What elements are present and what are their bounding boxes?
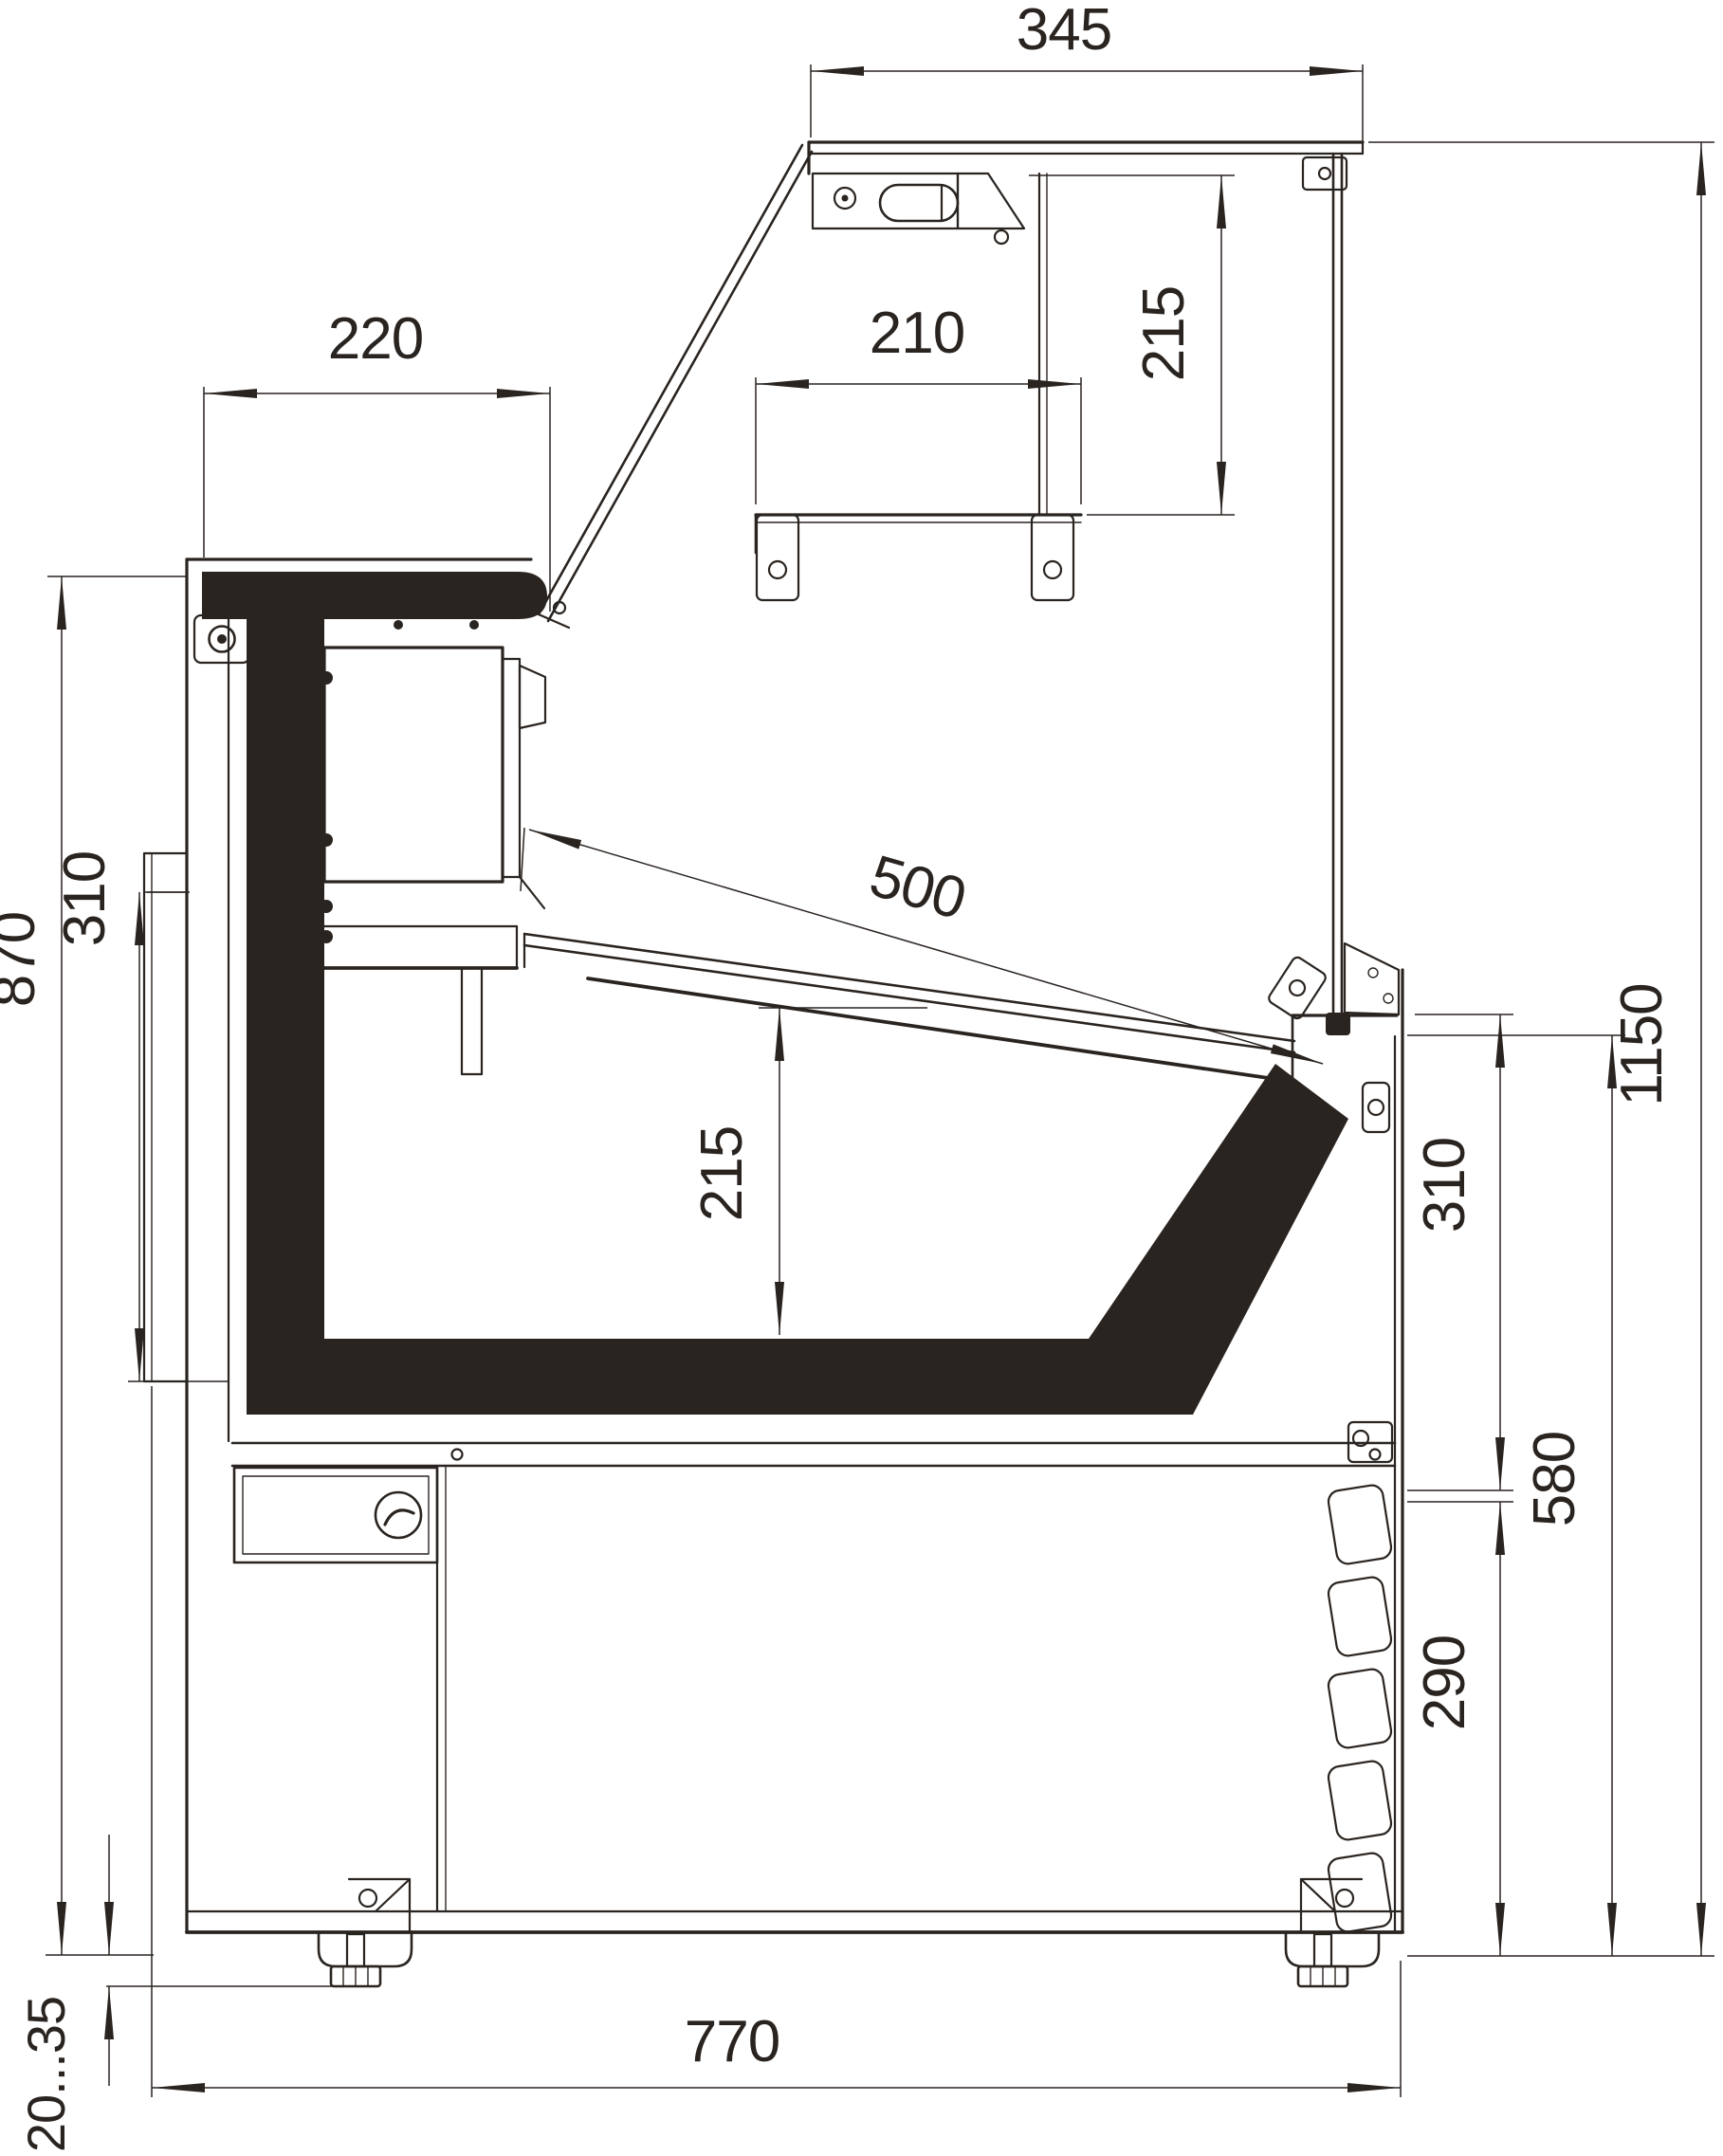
gusset-hole (1368, 968, 1378, 978)
corner-bracket-left-screw (359, 1890, 376, 1907)
evaporator-side-panel (503, 659, 520, 877)
evaporator-panel-chamfer (520, 877, 544, 908)
lamp-end-bracket (958, 174, 1024, 228)
band-screw (299, 620, 308, 630)
dim-label-210: 210 (870, 301, 964, 366)
evaporator-deflector (520, 666, 545, 728)
lamp-tube (880, 185, 958, 221)
rail-screw (1370, 1450, 1381, 1460)
liner-screw (320, 833, 333, 847)
lamp-screw-dot (842, 195, 849, 202)
dim-label-310-left: 310 (52, 851, 118, 946)
louver-slat (1327, 1484, 1392, 1565)
louver-slat (1327, 1576, 1392, 1657)
drain-pipe (462, 968, 482, 1074)
louver-slat (1327, 1852, 1392, 1933)
deck-support-rail (588, 978, 1288, 1081)
dim-label-215-well: 215 (689, 1126, 755, 1221)
sill-bracket-screw (1368, 1100, 1384, 1115)
intermediate-shelf (756, 515, 1081, 600)
technical-drawing-page: 345 220 210 215 500 215 310 870 1150 310… (0, 0, 1723, 2156)
dim-label-870: 870 (0, 912, 47, 1007)
liner-screw (320, 671, 333, 685)
dim-870-extensions (46, 576, 187, 1955)
corner-bracket-right-screw (1336, 1890, 1353, 1907)
worktop-band (202, 572, 547, 619)
dim-label-220: 220 (328, 306, 423, 372)
display-deck-bottom (524, 945, 1294, 1052)
foot-front (1269, 1932, 1396, 1986)
louver-slat (1327, 1760, 1392, 1841)
foot-screw-shaft (347, 1934, 364, 1966)
dim-label-20-35: 20...35 (16, 1997, 76, 2152)
dim-label-770: 770 (685, 2009, 779, 2074)
rear-flap-glass-outer (539, 145, 802, 614)
flap-clip-hole (1287, 978, 1308, 998)
shelf-bracket-left (757, 515, 798, 600)
dim-label-580: 580 (1522, 1432, 1587, 1526)
band-screw (394, 620, 403, 630)
foot-nut-knurl (1311, 1966, 1335, 1986)
corner-gusset (1345, 943, 1399, 1014)
foot-rear (302, 1932, 429, 1986)
louver-panel (1327, 1484, 1392, 1933)
base-compartment (187, 1443, 1402, 1932)
dim-345-extensions (811, 64, 1363, 142)
cable-gland-hook (385, 1510, 413, 1525)
dim-label-500: 500 (863, 843, 973, 932)
rear-flap-glass-inner (548, 152, 812, 621)
canopy-bracket (1303, 157, 1347, 190)
liner-screw (320, 900, 333, 913)
insulation-profile (202, 572, 1350, 1415)
cable-gland (376, 1492, 421, 1538)
dim-label-1150: 1150 (1609, 983, 1675, 1105)
canopy-bracket-hole (1319, 168, 1330, 179)
rear-service-panel (144, 853, 187, 1381)
corner-bracket-left-gusset (376, 1879, 410, 1911)
rail-screw (452, 1450, 463, 1460)
dim-label-345: 345 (1017, 0, 1111, 63)
evaporator-box (324, 648, 503, 882)
foot-screw-shaft (1314, 1934, 1331, 1966)
shelf-bracket-right (1032, 515, 1073, 600)
flap-clip-body (1267, 956, 1328, 1021)
well-liner-profile (247, 619, 1348, 1415)
electrical-box (234, 1468, 437, 1562)
electrical-box-inner (243, 1476, 429, 1554)
lamp-end-screw (995, 230, 1008, 244)
dim-310-right-extensions (1407, 1014, 1513, 1490)
dim-210-extensions (756, 377, 1081, 504)
shelf-bracket-hole-left (769, 561, 786, 578)
flap-clip (1267, 956, 1328, 1021)
foot-nut-knurl (343, 1966, 368, 1986)
shelf-bracket-hole-right (1044, 561, 1061, 578)
sill-bracket (1363, 1083, 1389, 1132)
liner-screw (320, 930, 333, 943)
flap-foot (539, 614, 569, 628)
dim-label-310-right: 310 (1412, 1138, 1477, 1233)
band-screw (469, 620, 479, 630)
louver-slat (1327, 1668, 1392, 1749)
display-counter-section-drawing: 345 220 210 215 500 215 310 870 1150 310… (0, 0, 1723, 2156)
dim-770-extensions (152, 1386, 1401, 2097)
hinge-bracket-screw-dot (217, 634, 227, 644)
dim-label-290: 290 (1412, 1635, 1477, 1730)
gusset-hole (1384, 994, 1393, 1003)
dim-label-215-top: 215 (1131, 286, 1197, 381)
